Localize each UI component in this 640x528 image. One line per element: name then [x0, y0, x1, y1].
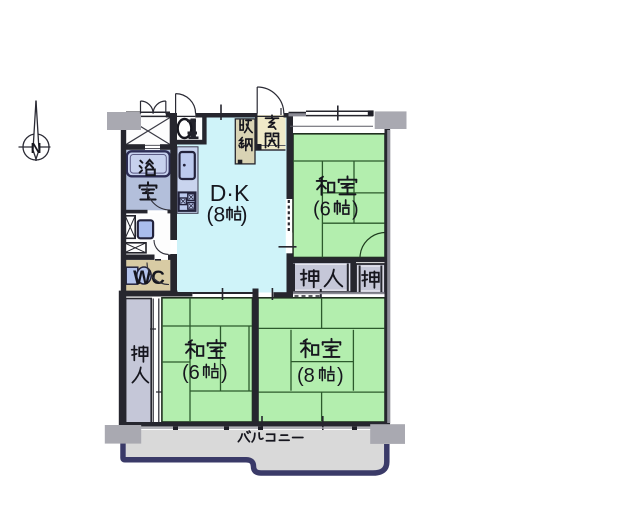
svg-text:(8: (8	[297, 365, 315, 387]
svg-text:): )	[241, 204, 248, 227]
svg-text:N: N	[31, 140, 42, 157]
svg-text:): )	[337, 365, 344, 387]
svg-text:(8: (8	[207, 204, 226, 227]
svg-text:(6: (6	[182, 362, 200, 384]
svg-text:(6: (6	[313, 199, 331, 221]
svg-text:): )	[221, 362, 228, 384]
svg-text:): )	[352, 199, 359, 221]
svg-text:D·K: D·K	[210, 180, 250, 206]
